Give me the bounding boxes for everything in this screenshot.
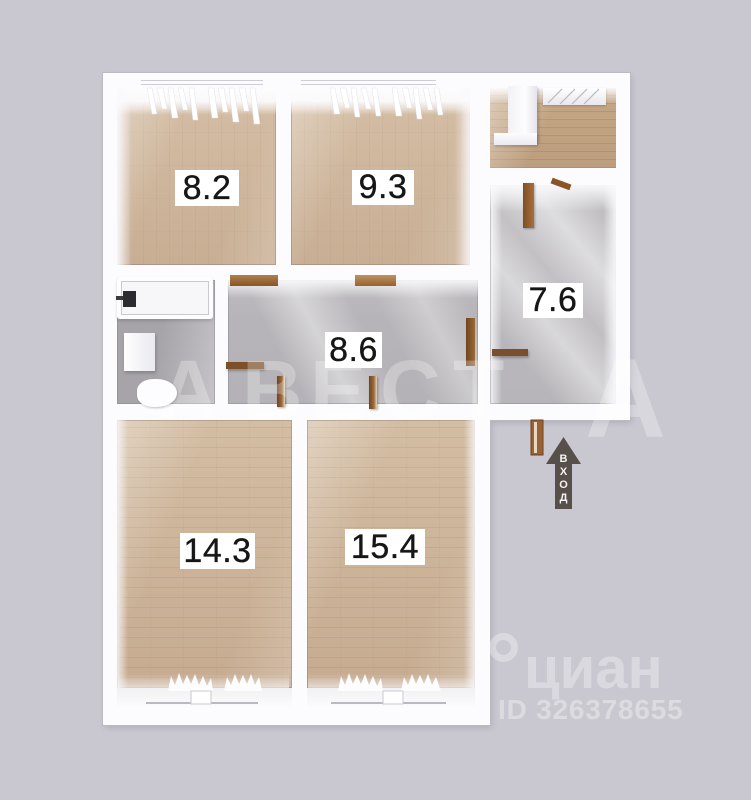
svg-text:О: О — [559, 479, 568, 491]
svg-text:Д: Д — [560, 492, 568, 504]
svg-text:В: В — [560, 453, 568, 465]
svg-text:Х: Х — [560, 466, 568, 478]
